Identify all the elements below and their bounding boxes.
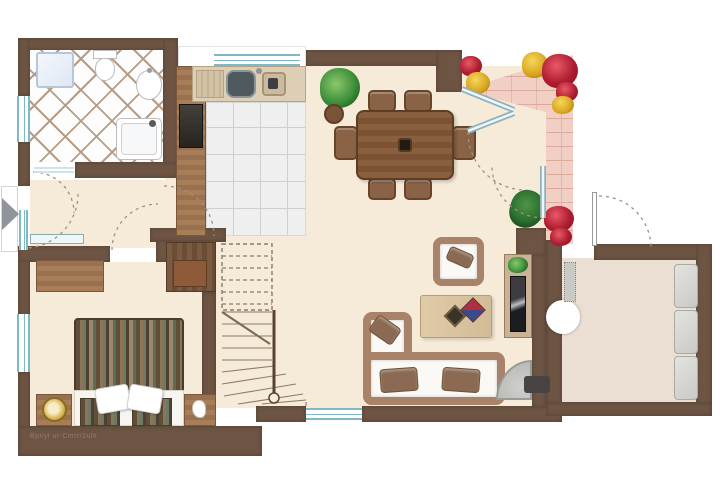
- entry-door-leaf: [592, 192, 597, 246]
- kitchen-floor: [206, 102, 306, 236]
- wall-bath-top: [18, 38, 178, 50]
- wall-bottom-bedroom: [18, 426, 262, 456]
- bathtub-faucet-icon: [149, 120, 156, 127]
- dining-chair-bottom-2: [404, 178, 432, 200]
- wall-bottom-living-b: [362, 406, 562, 422]
- bedroom-window: [17, 314, 30, 372]
- bedroom-desk: [36, 260, 104, 292]
- watermark-text: Bpl/yl ur Cmrr/2ulk: [30, 433, 97, 440]
- dining-chair-right: [452, 126, 476, 160]
- entry-radiator: [564, 262, 576, 302]
- entry-panel-3: [674, 356, 698, 400]
- wall-bottom-living-a: [256, 406, 306, 422]
- floor-plan: Bpl/yl ur Cmrr/2ulk: [0, 0, 720, 480]
- entry-panel-1: [674, 264, 698, 308]
- dining-chair-top-1: [368, 90, 396, 112]
- wall-entry-right: [696, 244, 712, 416]
- tv-flatscreen: [510, 276, 526, 332]
- bathroom-window: [17, 96, 30, 142]
- toilet-bowl: [95, 58, 115, 81]
- dining-planter-round: [324, 104, 344, 124]
- wall-bath-bottom: [75, 162, 178, 178]
- dining-table-centerpiece: [398, 138, 412, 152]
- entrance-glass-sidelight: [19, 210, 28, 250]
- nightstand-deco-shell: [192, 400, 206, 418]
- washbasin-faucet-icon: [147, 68, 152, 73]
- living-window-bottom: [306, 408, 362, 420]
- bed-duvet: [74, 318, 184, 392]
- entry-column-fixture: [546, 300, 580, 334]
- entry-hall-door-arc: [599, 196, 651, 248]
- sofa-cushion-1: [379, 367, 419, 394]
- fireplace-flue: [524, 376, 550, 393]
- sofa-cushion-2: [441, 367, 481, 394]
- bedside-lamp: [42, 397, 67, 422]
- wall-living-right-block: [516, 228, 546, 256]
- wall-left-4: [18, 372, 30, 428]
- wall-entry-top: [594, 244, 710, 260]
- entry-panel-2: [674, 310, 698, 354]
- dining-chair-left: [334, 126, 358, 160]
- stair-nook-wardrobe-panel: [173, 260, 207, 287]
- dining-chair-bottom-1: [368, 178, 396, 200]
- wall-terrace-jamb: [436, 50, 462, 92]
- wall-left-1: [18, 38, 30, 96]
- kitchen-oven: [179, 104, 203, 148]
- bathtub-inner: [121, 123, 157, 155]
- wall-left-2: [18, 142, 30, 186]
- bed-pillow-right: [126, 383, 164, 415]
- entrance-arrow-icon: [2, 198, 19, 230]
- wall-entry-bottom: [546, 402, 712, 416]
- kitchen-sink-item: [268, 78, 278, 89]
- kitchen-sink-main: [226, 70, 256, 98]
- dining-chair-top-2: [404, 90, 432, 112]
- kitchen-window: [214, 54, 300, 66]
- wall-top-kitchen-dining: [306, 50, 442, 66]
- hallway-radiator: [30, 234, 84, 244]
- kitchen-faucet-icon: [256, 68, 262, 74]
- washbasin: [136, 70, 162, 100]
- shower-cabin: [36, 52, 74, 88]
- kitchen-drainboard: [196, 70, 224, 98]
